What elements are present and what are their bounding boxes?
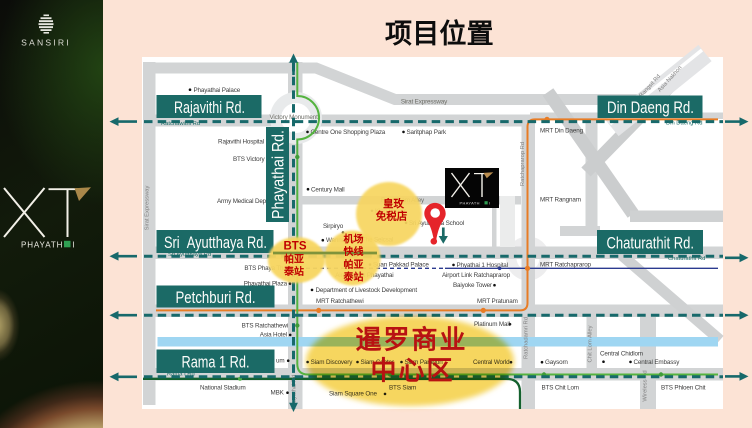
svg-text:Chaturathit Rd.: Chaturathit Rd. bbox=[607, 234, 695, 252]
svg-text:暹罗商业: 暹罗商业 bbox=[355, 325, 467, 355]
svg-text:MRT Rangnam: MRT Rangnam bbox=[540, 196, 581, 203]
svg-text:Airport Link Ratchaprarop: Airport Link Ratchaprarop bbox=[442, 272, 511, 279]
svg-text:Saritphap Park: Saritphap Park bbox=[407, 129, 448, 136]
svg-text:Central Chidlom: Central Chidlom bbox=[600, 351, 643, 358]
svg-text:Petchburi Rd.: Petchburi Rd. bbox=[176, 289, 256, 307]
svg-text:Platinum Mall: Platinum Mall bbox=[474, 321, 510, 328]
svg-text:快线: 快线 bbox=[343, 245, 364, 258]
svg-text:Sri Ayutthaya Rd: Sri Ayutthaya Rd bbox=[168, 252, 211, 258]
svg-text:Din Daeng Rd: Din Daeng Rd bbox=[666, 120, 702, 126]
svg-text:MBK: MBK bbox=[271, 389, 285, 396]
svg-text:Suan Pakkad Palace: Suan Pakkad Palace bbox=[373, 262, 429, 269]
svg-text:MRT Din Daeng: MRT Din Daeng bbox=[540, 127, 584, 134]
svg-text:Department of Livestock Develo: Department of Livestock Development bbox=[316, 287, 418, 294]
svg-text:BTS Chit Lom: BTS Chit Lom bbox=[542, 384, 579, 391]
svg-text:Army Medical Depart: Army Medical Depart bbox=[217, 198, 273, 205]
svg-text:Chit Lom Alley: Chit Lom Alley bbox=[588, 325, 594, 362]
svg-text:MRT Ratchaprarop: MRT Ratchaprarop bbox=[540, 261, 592, 268]
svg-text:Phayathai Palace: Phayathai Palace bbox=[194, 87, 241, 94]
svg-text:Phayathai Rd.: Phayathai Rd. bbox=[269, 130, 287, 219]
svg-text:Rama I Rd: Rama I Rd bbox=[167, 371, 195, 377]
svg-text:泰站: 泰站 bbox=[283, 265, 304, 278]
svg-text:帕亚: 帕亚 bbox=[284, 253, 304, 266]
svg-text:Rama 1 Rd.: Rama 1 Rd. bbox=[182, 353, 250, 371]
svg-text:Ratchawithi Rd: Ratchawithi Rd bbox=[161, 121, 200, 127]
svg-text:机场: 机场 bbox=[344, 233, 364, 246]
svg-text:PHAYATH: PHAYATH bbox=[460, 201, 480, 206]
svg-text:I: I bbox=[489, 201, 490, 206]
svg-text:Rajavithi Hospital: Rajavithi Hospital bbox=[218, 139, 264, 146]
svg-text:MRT Ratchathewi: MRT Ratchathewi bbox=[316, 298, 364, 305]
svg-text:BTS Ratchathewi: BTS Ratchathewi bbox=[242, 323, 288, 330]
svg-text:National Stadium: National Stadium bbox=[200, 384, 246, 391]
svg-text:um: um bbox=[276, 357, 284, 364]
svg-text:免税店: 免税店 bbox=[376, 210, 408, 223]
svg-text:Ratchadamri Rd: Ratchadamri Rd bbox=[524, 317, 530, 359]
svg-text:Ratchaprarop Rd: Ratchaprarop Rd bbox=[520, 142, 526, 186]
svg-text:皇玫: 皇玫 bbox=[383, 197, 404, 210]
svg-text:Gaysorn: Gaysorn bbox=[545, 359, 568, 366]
svg-text:帕亚: 帕亚 bbox=[344, 258, 364, 271]
svg-text:Chaturathit Rd: Chaturathit Rd bbox=[668, 256, 705, 262]
svg-text:Sirat Expressway: Sirat Expressway bbox=[401, 99, 448, 106]
svg-text:Sri Ayutthaya Rd.: Sri Ayutthaya Rd. bbox=[164, 234, 267, 252]
svg-text:MRT Pratunam: MRT Pratunam bbox=[477, 298, 518, 305]
svg-text:Din Daeng Rd.: Din Daeng Rd. bbox=[607, 99, 694, 117]
svg-text:Sirpiryo: Sirpiryo bbox=[323, 223, 344, 230]
svg-text:Centre One Shopping Plaza: Centre One Shopping Plaza bbox=[311, 129, 386, 136]
svg-text:中心区: 中心区 bbox=[370, 356, 454, 386]
svg-text:泰站: 泰站 bbox=[343, 271, 364, 284]
svg-text:Central Embassy: Central Embassy bbox=[634, 359, 681, 366]
svg-text:Baiyoke Tower: Baiyoke Tower bbox=[453, 282, 492, 289]
svg-text:Rajavithi Rd.: Rajavithi Rd. bbox=[174, 99, 245, 117]
svg-text:BTS: BTS bbox=[284, 240, 307, 252]
svg-text:Century Mall: Century Mall bbox=[311, 186, 345, 193]
svg-text:Asia Hotel: Asia Hotel bbox=[260, 332, 287, 339]
svg-text:Sirat Expressway: Sirat Expressway bbox=[145, 186, 151, 231]
svg-text:BTS Phloen Chit: BTS Phloen Chit bbox=[661, 384, 706, 391]
